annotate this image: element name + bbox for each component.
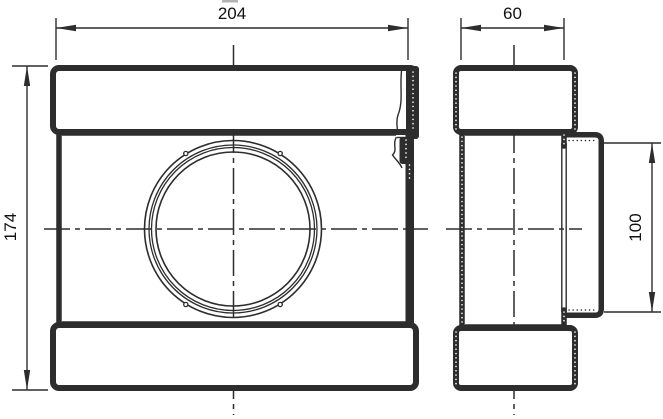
side-top-collar <box>456 68 575 132</box>
dim-branch-diameter: 100 <box>604 143 661 312</box>
arrowhead-up-icon <box>649 143 655 163</box>
drawing-canvas: 204 174 60 100 <box>0 0 663 419</box>
arrowhead-right-icon <box>388 25 408 31</box>
port-tab-icon <box>278 151 282 155</box>
dim-label-side-depth: 60 <box>503 4 522 23</box>
dim-front-height: 174 <box>1 66 48 390</box>
dim-label-front-width: 204 <box>218 4 246 23</box>
arrowhead-down-icon <box>24 370 30 390</box>
arrowhead-right-icon <box>544 25 564 31</box>
branch-spigot <box>566 135 601 316</box>
technical-drawing: 204 174 60 100 <box>0 0 663 419</box>
front-view <box>44 45 428 415</box>
arrowhead-left-icon <box>56 25 76 31</box>
side-view <box>446 45 601 415</box>
port-tab-icon <box>184 302 188 306</box>
dim-front-width: 204 <box>56 4 408 60</box>
port-tab-icon <box>278 302 282 306</box>
front-top-collar <box>53 68 416 132</box>
arrowhead-left-icon <box>461 25 481 31</box>
arrowhead-down-icon <box>649 292 655 312</box>
dim-label-front-height: 174 <box>1 213 20 241</box>
arrowhead-up-icon <box>24 66 30 86</box>
dim-label-branch-diameter: 100 <box>626 213 645 241</box>
screen-artifact <box>222 0 238 3</box>
front-bottom-collar <box>53 325 416 388</box>
dim-side-depth: 60 <box>461 4 564 60</box>
port-tab-icon <box>184 151 188 155</box>
side-bottom-collar <box>456 328 575 388</box>
front-section-wall-step <box>400 137 413 164</box>
